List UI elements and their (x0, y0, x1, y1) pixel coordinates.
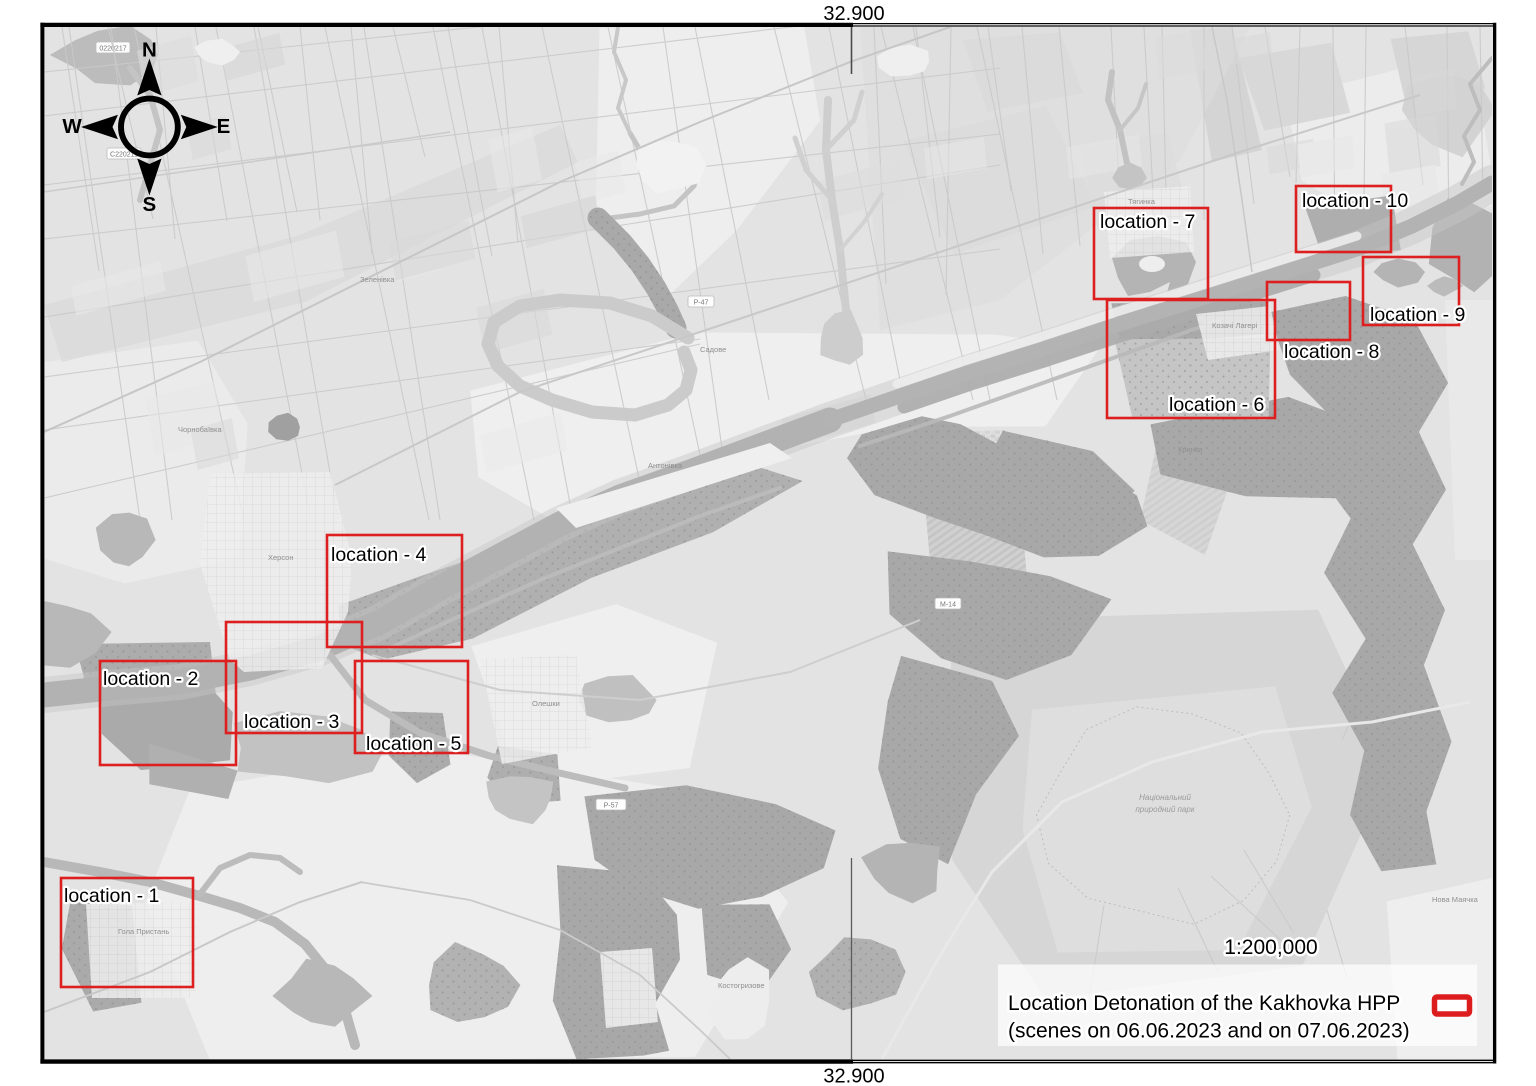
svg-text:W: W (62, 115, 82, 138)
svg-text:location - 8: location - 8 (1284, 341, 1379, 363)
svg-text:Тягинка: Тягинка (1128, 197, 1156, 206)
svg-text:Козачі Лагері: Козачі Лагері (1212, 321, 1258, 330)
svg-text:природний парк: природний парк (1135, 805, 1195, 814)
svg-text:P-57: P-57 (604, 803, 619, 810)
svg-text:location - 9: location - 9 (1370, 304, 1465, 326)
svg-text:Нова Маячка: Нова Маячка (1432, 895, 1479, 904)
svg-text:Олешки: Олешки (532, 699, 560, 708)
svg-text:Садове: Садове (700, 345, 726, 354)
svg-text:Гола Пристань: Гола Пристань (118, 927, 169, 936)
svg-text:Чорнобаївка: Чорнобаївка (178, 425, 222, 434)
svg-text:Location Detonation of the Kak: Location Detonation of the Kakhovka HPP (1008, 992, 1400, 1015)
svg-text:Антонівка: Антонівка (648, 461, 683, 470)
svg-text:location - 4: location - 4 (331, 544, 427, 566)
svg-text:1:200,000: 1:200,000 (1224, 936, 1317, 959)
svg-text:location - 7: location - 7 (1100, 211, 1195, 233)
svg-text:Херсон: Херсон (268, 553, 294, 562)
svg-text:Костогризове: Костогризове (718, 981, 765, 990)
svg-text:(scenes on 06.06.2023 and on 0: (scenes on 06.06.2023 and on 07.06.2023) (1008, 1020, 1410, 1043)
svg-text:E: E (217, 115, 231, 138)
svg-text:M-14: M-14 (940, 602, 956, 609)
svg-text:N: N (142, 39, 157, 62)
svg-text:location - 6: location - 6 (1169, 394, 1264, 416)
svg-text:location - 1: location - 1 (64, 885, 159, 907)
svg-text:Зеленівка: Зеленівка (360, 275, 395, 284)
svg-text:Кринки: Кринки (1178, 445, 1202, 454)
svg-text:location - 3: location - 3 (244, 711, 339, 733)
svg-text:P-47: P-47 (694, 300, 709, 307)
svg-text:Національний: Національний (1139, 793, 1191, 802)
svg-text:S: S (143, 193, 157, 216)
svg-text:32.900: 32.900 (823, 1066, 884, 1086)
svg-text:location - 5: location - 5 (366, 733, 462, 755)
svg-text:location - 2: location - 2 (103, 668, 198, 690)
svg-text:location - 10: location - 10 (1302, 190, 1408, 212)
svg-text:32.900: 32.900 (823, 3, 884, 25)
